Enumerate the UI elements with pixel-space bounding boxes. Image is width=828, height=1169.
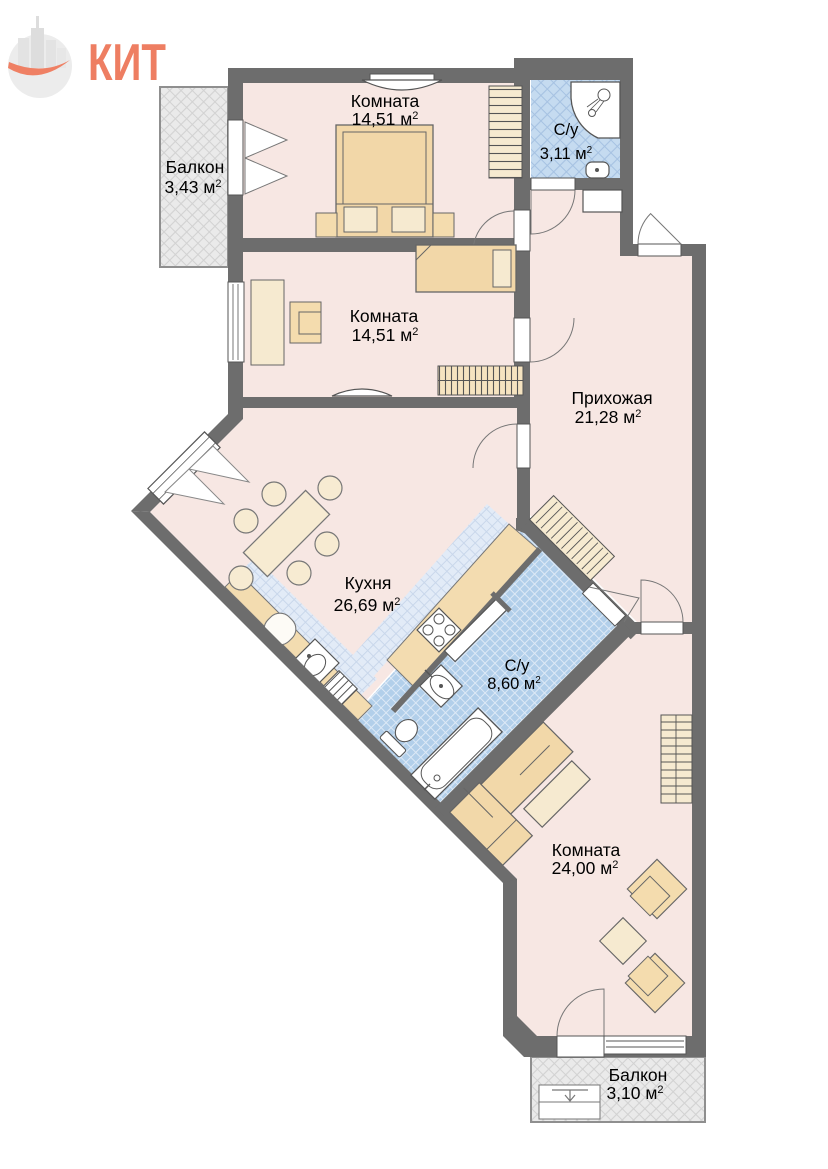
- svg-text:Комната: Комната: [351, 91, 420, 111]
- svg-text:Кухня: Кухня: [345, 573, 392, 593]
- svg-text:3,10 м2: 3,10 м2: [606, 1083, 663, 1103]
- svg-text:Балкон: Балкон: [609, 1065, 668, 1085]
- svg-text:26,69 м2: 26,69 м2: [334, 595, 401, 615]
- svg-text:21,28 м2: 21,28 м2: [575, 407, 642, 427]
- svg-text:С/у: С/у: [554, 121, 580, 139]
- svg-text:Прихожая: Прихожая: [571, 388, 652, 408]
- svg-text:Комната: Комната: [350, 306, 419, 326]
- svg-text:3,43 м2: 3,43 м2: [164, 177, 221, 197]
- svg-text:24,00 м2: 24,00 м2: [552, 858, 619, 878]
- svg-text:С/у: С/у: [505, 657, 531, 675]
- svg-text:8,60 м2: 8,60 м2: [487, 675, 541, 693]
- svg-text:КИТ: КИТ: [88, 34, 166, 92]
- svg-text:14,51 м2: 14,51 м2: [352, 325, 419, 345]
- svg-text:Балкон: Балкон: [166, 157, 225, 177]
- svg-text:Комната: Комната: [552, 840, 621, 860]
- svg-text:14,51 м2: 14,51 м2: [352, 109, 419, 129]
- svg-text:3,11 м2: 3,11 м2: [540, 145, 593, 163]
